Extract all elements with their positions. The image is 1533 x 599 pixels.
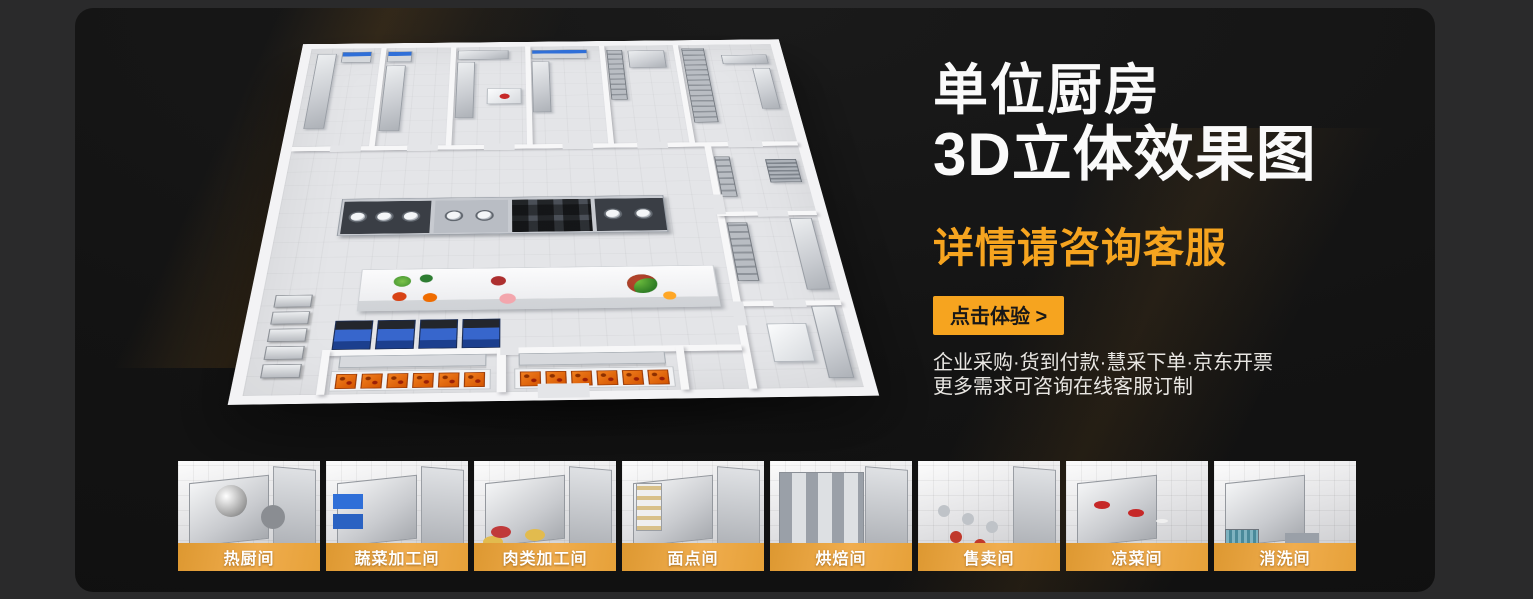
equipment-block	[811, 306, 854, 378]
thumbnail-sales[interactable]: 售卖间	[918, 461, 1060, 571]
kitchen-floorplan-3d	[228, 39, 880, 405]
equipment-block	[752, 68, 780, 109]
thumbnail-vegetable-processing[interactable]: 蔬菜加工间	[326, 461, 468, 571]
equipment-block	[303, 54, 337, 129]
title-line-1: 单位厨房	[933, 60, 1413, 122]
vegetable-pile	[626, 274, 658, 293]
food-plate	[499, 293, 515, 304]
thumbnail-label: 售卖间	[918, 543, 1060, 571]
machine	[375, 320, 416, 350]
trolley	[260, 364, 302, 378]
island-table	[766, 323, 815, 362]
wok-range	[340, 201, 431, 234]
equipment-shape	[337, 474, 417, 546]
equipment-block	[387, 51, 413, 62]
thumbnail-washing[interactable]: 消洗间	[1214, 461, 1356, 571]
equipment-block	[531, 49, 588, 58]
equipment-block	[532, 61, 552, 112]
vent-unit	[765, 159, 802, 182]
trolley	[267, 328, 308, 342]
door-gap	[711, 194, 726, 214]
food-plate	[393, 276, 411, 287]
wall	[291, 141, 798, 151]
thumbnail-hot-kitchen[interactable]: 热厨间	[178, 461, 320, 571]
equipment-block	[627, 50, 666, 67]
equipment-shape	[491, 526, 511, 538]
door-gap	[500, 346, 518, 355]
burner	[634, 208, 654, 219]
equipment-shape	[1013, 466, 1056, 549]
info-line-2: 更多需求可咨询在线客服订制	[933, 375, 1413, 399]
equipment-shape	[636, 483, 662, 531]
work-counter	[519, 351, 667, 365]
trolley	[263, 346, 304, 360]
food-plate	[491, 276, 506, 286]
tray	[647, 370, 670, 385]
equipment-shape	[938, 505, 950, 517]
door-gap	[484, 143, 515, 150]
trolley	[273, 295, 313, 308]
title-line-2: 3D立体效果图	[933, 122, 1413, 188]
cooking-line	[337, 195, 669, 236]
wok-range	[594, 198, 667, 231]
door-gap	[727, 141, 763, 148]
food-plate	[423, 293, 438, 302]
equipment-shape	[569, 466, 612, 549]
blue-machine-row	[332, 319, 505, 350]
meat-table	[487, 88, 522, 104]
tray	[360, 373, 383, 388]
door-gap	[407, 144, 438, 151]
equipment-shape	[779, 472, 864, 549]
burner	[444, 210, 463, 221]
tray	[596, 370, 618, 385]
burner	[401, 211, 420, 222]
hero-text: 单位厨房 3D立体效果图 详情请咨询客服 点击体验 > 企业采购·货到付款·慧采…	[933, 60, 1413, 399]
door-gap	[772, 299, 807, 307]
six-burner-range	[512, 199, 593, 232]
gallery: 热厨间 蔬菜加工间 肉类加工间 面点间 烘焙间 售卖间	[178, 461, 1356, 571]
food-tray-bank	[328, 369, 491, 392]
thumbnail-label: 蔬菜加工间	[326, 543, 468, 571]
equipment-shape	[865, 466, 908, 549]
machine	[332, 320, 374, 350]
thumbnail-label: 面点间	[622, 543, 764, 571]
tray	[438, 372, 460, 387]
trolley	[270, 311, 310, 324]
tray	[622, 370, 644, 385]
thumbnail-label: 消洗间	[1214, 543, 1356, 571]
prep-table	[357, 265, 721, 311]
door-gap	[538, 383, 590, 398]
banner: 单位厨房 3D立体效果图 详情请咨询客服 点击体验 > 企业采购·货到付款·慧采…	[0, 0, 1533, 599]
equipment-block	[721, 55, 769, 64]
equipment-block	[458, 50, 509, 59]
food-plate	[663, 291, 677, 299]
equipment-shape	[717, 466, 760, 549]
tray	[334, 374, 357, 389]
burner	[475, 210, 494, 221]
equipment-shape	[273, 466, 316, 549]
door-gap	[637, 142, 668, 149]
cta-button[interactable]: 点击体验 >	[933, 296, 1064, 335]
thumbnail-baking[interactable]: 烘焙间	[770, 461, 912, 571]
equipment-shape	[215, 485, 247, 517]
equipment-shape	[1094, 501, 1110, 509]
thumbnail-pastry[interactable]: 面点间	[622, 461, 764, 571]
work-counter	[338, 354, 486, 368]
equipment-shape	[1077, 474, 1157, 546]
meat-plate	[500, 94, 510, 99]
equipment-shape	[421, 466, 464, 549]
hero-subtitle: 详情请咨询客服	[933, 214, 1413, 274]
stock-pot-range	[433, 200, 508, 233]
shelf-rack	[606, 50, 628, 100]
food-plate	[392, 292, 407, 301]
thumbnail-label: 热厨间	[178, 543, 320, 571]
equipment-block	[341, 52, 373, 63]
tray	[386, 373, 408, 388]
thumbnail-label: 肉类加工间	[474, 543, 616, 571]
door-gap	[330, 145, 362, 152]
tray	[412, 373, 434, 388]
page-title: 单位厨房 3D立体效果图	[933, 60, 1413, 188]
burner	[375, 211, 395, 222]
burner	[603, 208, 622, 219]
equipment-shape	[333, 494, 363, 509]
equipment-block	[455, 62, 475, 118]
machine	[418, 319, 458, 349]
thumbnail-label: 凉菜间	[1066, 543, 1208, 571]
door-gap	[757, 210, 789, 217]
thumbnail-cold-dish[interactable]: 凉菜间	[1066, 461, 1208, 571]
thumbnail-meat-processing[interactable]: 肉类加工间	[474, 461, 616, 571]
tray	[464, 372, 485, 387]
info-line-1: 企业采购·货到付款·慧采下单·京东开票	[933, 351, 1413, 375]
banner-panel: 单位厨房 3D立体效果图 详情请咨询客服 点击体验 > 企业采购·货到付款·慧采…	[75, 8, 1435, 592]
door-gap	[562, 143, 593, 150]
equipment-block	[789, 218, 830, 290]
machine	[462, 319, 501, 349]
wall	[675, 345, 689, 390]
burner	[348, 211, 368, 222]
food-plate	[420, 274, 433, 282]
thumbnail-label: 烘焙间	[770, 543, 912, 571]
